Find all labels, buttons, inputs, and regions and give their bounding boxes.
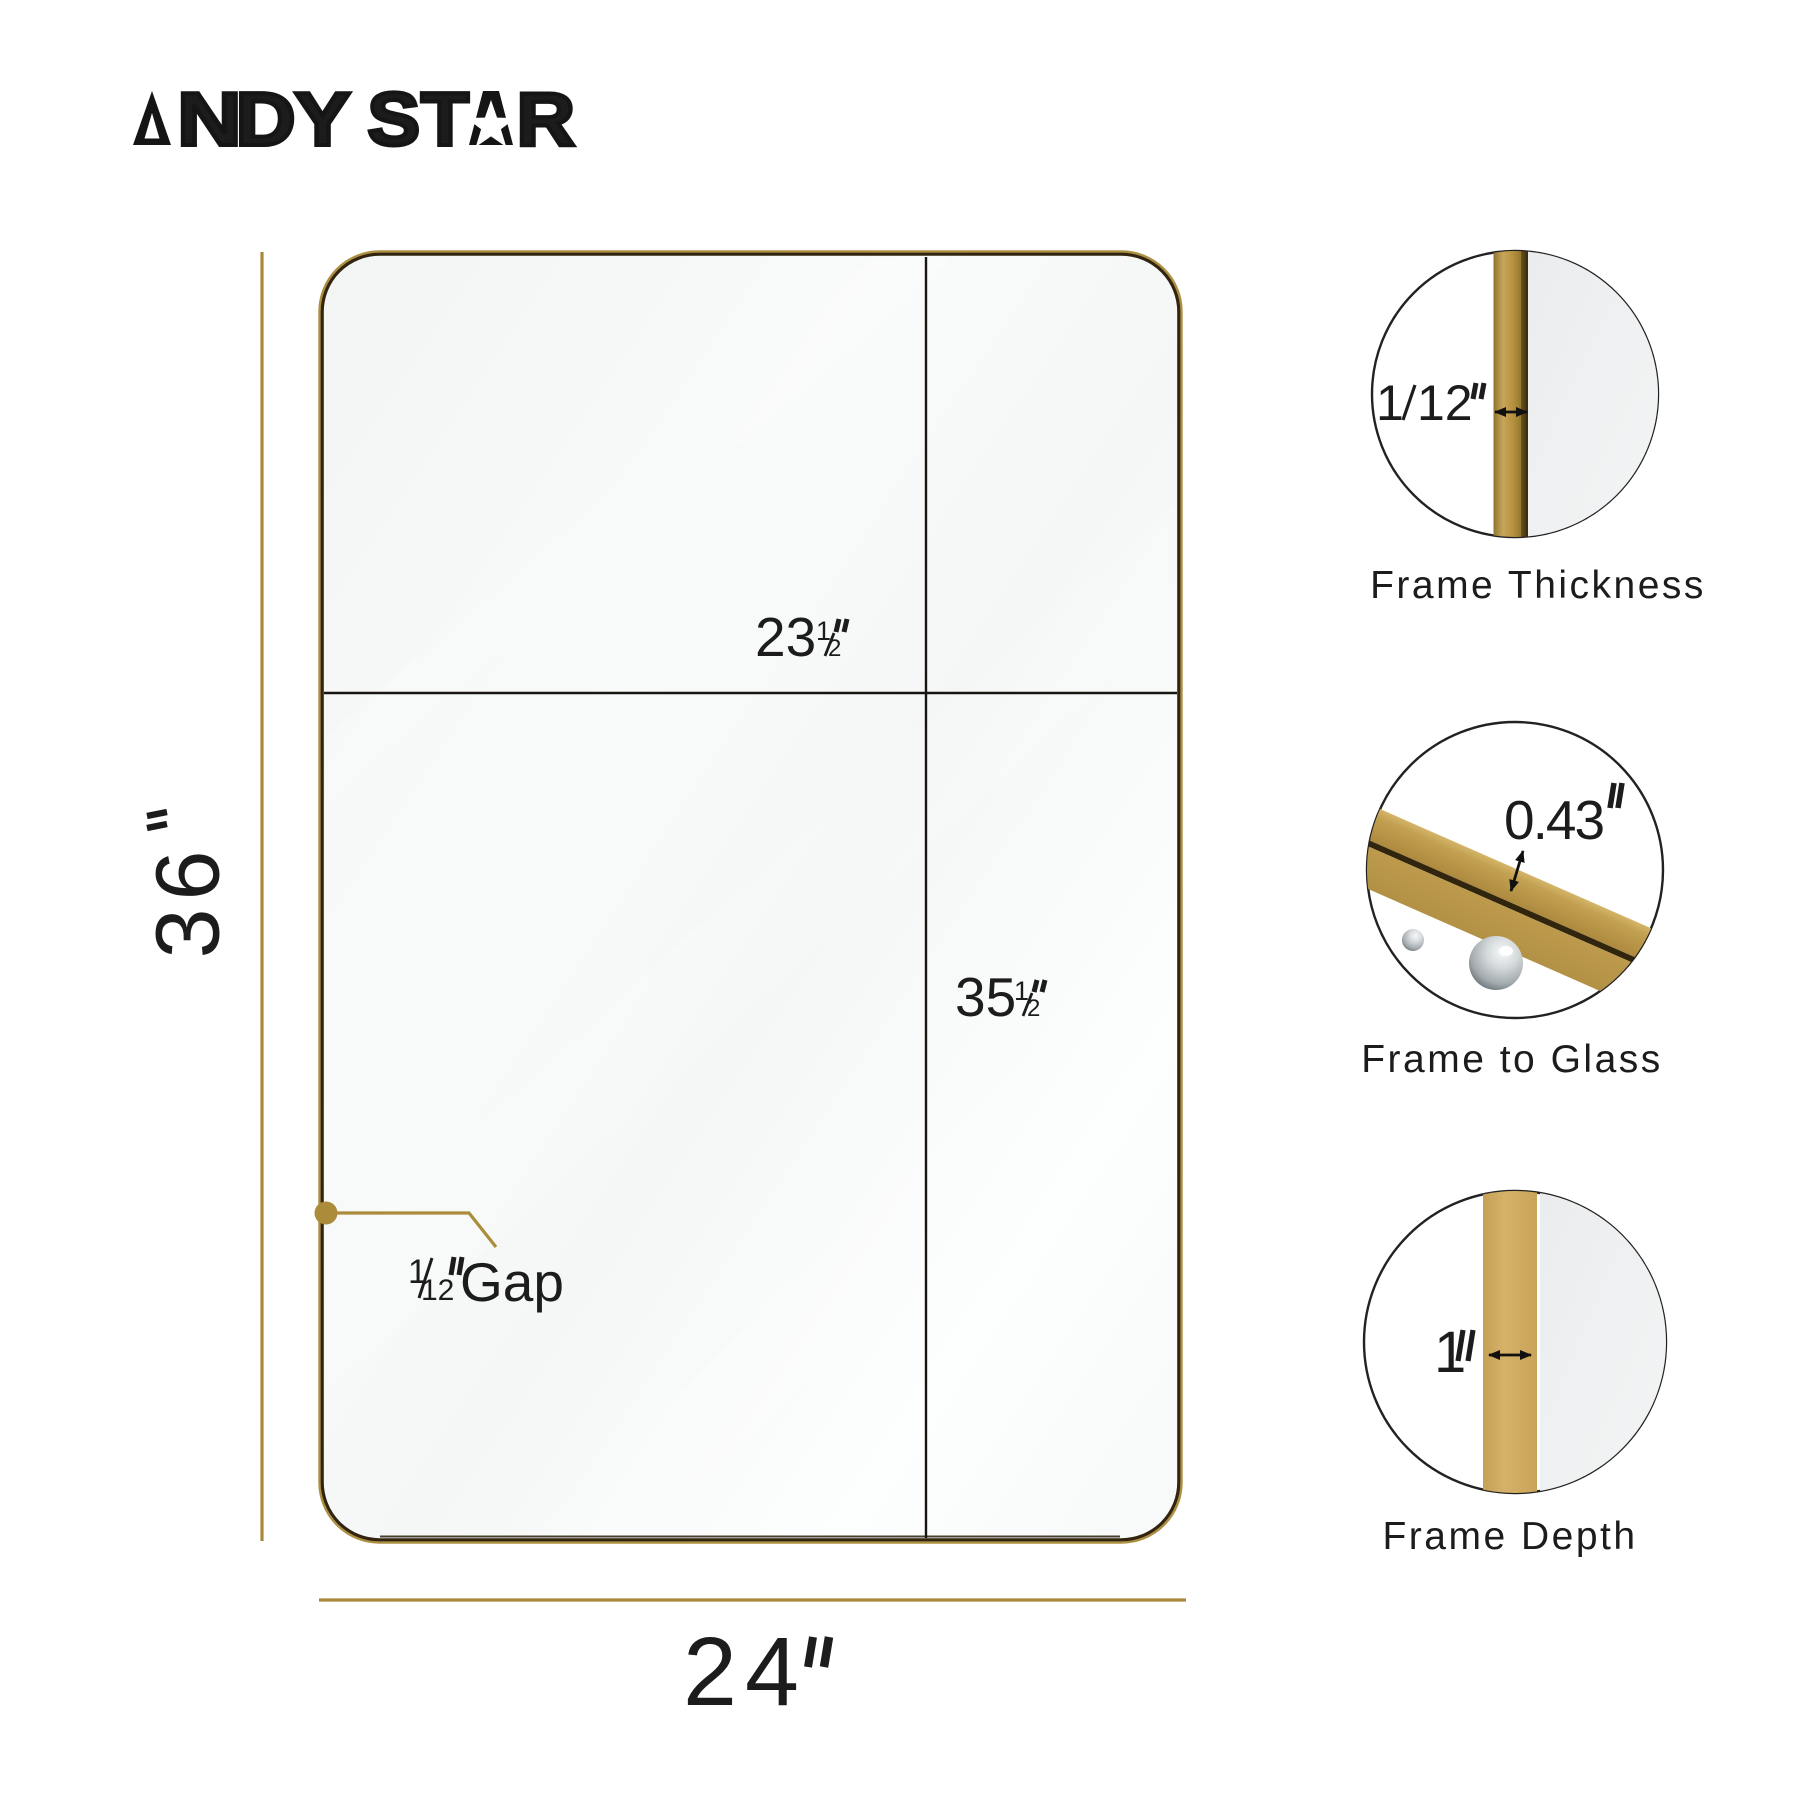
svg-text:36: 36 — [139, 842, 239, 958]
svg-text:Gap: Gap — [460, 1251, 564, 1313]
svg-text:R: R — [517, 77, 576, 162]
svg-text:Y: Y — [295, 77, 351, 161]
svg-text:12: 12 — [1417, 375, 1473, 431]
svg-text:2: 2 — [828, 635, 841, 662]
svg-text:1: 1 — [1376, 375, 1404, 431]
svg-text:T: T — [421, 79, 469, 162]
svg-text:24: 24 — [683, 1617, 807, 1726]
svg-text:Frame to Glass: Frame to Glass — [1361, 1038, 1663, 1081]
svg-text:Frame Depth: Frame Depth — [1382, 1515, 1637, 1558]
svg-text:N: N — [177, 78, 241, 161]
svg-text:23: 23 — [755, 606, 816, 668]
svg-text:0.43: 0.43 — [1504, 789, 1603, 851]
svg-text:35: 35 — [955, 966, 1016, 1028]
svg-text:D: D — [236, 77, 296, 161]
svg-text:12: 12 — [421, 1274, 454, 1307]
svg-text:S: S — [368, 78, 421, 162]
svg-text:Frame Thickness: Frame Thickness — [1370, 564, 1706, 607]
svg-text:2: 2 — [1027, 995, 1040, 1022]
